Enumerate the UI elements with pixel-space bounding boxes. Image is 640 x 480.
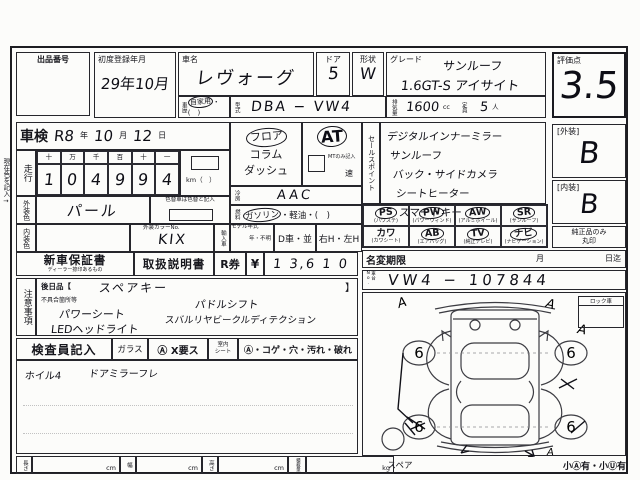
defect-right-1: パドルシフト bbox=[194, 297, 259, 312]
equipment-navi: ナビ(ナビゲーション) bbox=[501, 226, 547, 247]
mileage-d1: 1 bbox=[43, 170, 55, 189]
history-label: 車歴 bbox=[180, 102, 186, 113]
grade-line2: 1.6GT-S アイサイト bbox=[400, 75, 520, 94]
notes-cell: 後日品【 スペアキー 】 不具合箇所等 パワーシート LEDヘッドライト パドル… bbox=[36, 278, 358, 336]
mileage-h5: 十 bbox=[132, 151, 156, 164]
mileage-digits: 十 万 千 百 十 一 1 0 4 9 9 4 bbox=[36, 150, 180, 196]
lock-box: ロック車 bbox=[578, 296, 624, 328]
shape-cell: 形状 W bbox=[352, 52, 384, 96]
car-name-cell: 車名 レヴォーグ bbox=[178, 52, 314, 96]
sales-points-label: セールスポイント bbox=[362, 122, 380, 204]
length-label: 長さ bbox=[16, 456, 32, 474]
model-year-value: 年・不明 bbox=[231, 231, 273, 243]
car-name-value: レヴォーグ bbox=[195, 64, 298, 90]
mileage-h2: 万 bbox=[61, 151, 85, 164]
recycle-amount-cell: 1 3,6 1 0 bbox=[264, 252, 358, 276]
exterior-color-label: 外装色 bbox=[16, 196, 36, 224]
handle-cell: 右H・左H bbox=[316, 224, 362, 252]
height-cell: cm bbox=[218, 456, 288, 474]
first-registration-value: 29年10月 bbox=[100, 73, 170, 94]
sales-line-1: デジタルインナーミラー bbox=[386, 129, 503, 144]
mileage-h3: 千 bbox=[84, 151, 108, 164]
load-label: 積載量 bbox=[288, 456, 306, 474]
speed-suffix: 速 bbox=[345, 169, 353, 178]
wheel-mark-fr: 6 bbox=[566, 344, 576, 362]
mileage-unit-cell: km（ ） bbox=[180, 150, 230, 196]
mt-box bbox=[308, 155, 325, 172]
shift-position-opt3: ダッシュ bbox=[244, 163, 288, 180]
height-label: 高さ bbox=[202, 456, 218, 474]
seat-note: Ⓐ・コゲ・穴・汚れ・破れ bbox=[238, 338, 358, 360]
lock-label: ロック車 bbox=[579, 297, 623, 306]
transmission-cell: AT MTのみ記入 速 bbox=[302, 122, 362, 186]
capacity-label: 定員 bbox=[460, 102, 466, 113]
sales-line-3: バック・サイドカメラ bbox=[392, 167, 498, 182]
sales-line-4: シートヒーター bbox=[395, 186, 470, 201]
inspector-remark-1: ホイル4 bbox=[24, 367, 62, 382]
shaken-month-suffix: 月 bbox=[119, 131, 127, 140]
shaken-day: 12 bbox=[132, 127, 153, 145]
color-no-value: KIX bbox=[157, 232, 188, 248]
seat-label: 室内 シート bbox=[208, 338, 238, 360]
capacity-value: 5 bbox=[479, 100, 489, 115]
score-cell: 評価点 3.5 bbox=[552, 52, 626, 118]
glass-note: Ⓐ X要ス bbox=[148, 338, 208, 360]
name-change-month: 月 bbox=[536, 254, 544, 263]
load-unit: kg bbox=[382, 465, 390, 472]
damage-mark-a: A bbox=[395, 295, 409, 312]
first-registration-cell: 初度登録年月 29年10月 bbox=[94, 52, 176, 118]
shaken-era: R8 bbox=[53, 127, 75, 145]
width-cell: cm bbox=[136, 456, 202, 474]
import-car-label: 輸入車 bbox=[214, 224, 230, 252]
side-note: 現在色を記入→ bbox=[2, 158, 9, 238]
warranty-label: 新車保証書 bbox=[44, 255, 107, 267]
displacement-label: 排気量 bbox=[390, 99, 396, 116]
color-no-label: 外装カラーNo. bbox=[131, 225, 213, 232]
chassis-value: VW4 − 107844 bbox=[387, 271, 551, 289]
color-change-note: 色替車は色替と記入 bbox=[151, 197, 229, 204]
defect-label: 不具合箇所等 bbox=[41, 295, 77, 304]
exterior-color-value: パール bbox=[66, 200, 119, 221]
warranty-cell: 新車保証書 ディーラー捺印あるもの bbox=[16, 252, 134, 276]
genuine-parts-note: 純正品のみ 丸印 bbox=[552, 226, 626, 248]
mileage-h4: 百 bbox=[108, 151, 132, 164]
car-name-label: 車名 bbox=[179, 53, 313, 64]
damage-mark-a: A bbox=[543, 296, 556, 313]
equipment-ab: AB(エアバッグ) bbox=[409, 226, 455, 247]
recycle-ticket-label: R券 bbox=[214, 252, 246, 276]
equipment-tv: TV(純正テレビ) bbox=[455, 226, 501, 247]
name-change-row: 名変期限 月 日迄 bbox=[362, 250, 626, 268]
model-year-cell: モデル年式 年・不明 bbox=[230, 224, 274, 252]
mt-note: MTのみ記入 bbox=[328, 153, 360, 160]
defect-left-1: パワーシート bbox=[58, 306, 125, 322]
equipment-sr: SR(サンルーフ) bbox=[501, 205, 547, 226]
length-unit: cm bbox=[106, 465, 116, 472]
chassis-label: 車台No. bbox=[365, 271, 374, 289]
shape-label: 形状 bbox=[353, 53, 383, 64]
length-cell: cm bbox=[32, 456, 120, 474]
inspector-remark-2: ドアミラーフレ bbox=[88, 365, 159, 380]
warranty-sub: ディーラー捺印あるもの bbox=[48, 268, 103, 273]
shaken-row: 車検 R8 年 10 月 12 日 bbox=[16, 122, 230, 150]
glass-label: ガラス bbox=[112, 338, 148, 360]
wheel-mark-fl: 6 bbox=[414, 344, 424, 362]
door-label: ドア bbox=[317, 53, 349, 64]
lot-number-label: 出品番号 bbox=[17, 53, 89, 64]
mileage-h1: 十 bbox=[37, 151, 61, 164]
capacity-unit: 人 bbox=[492, 104, 499, 111]
color-change-cell: 色替車は色替と記入 bbox=[150, 196, 230, 224]
manual-cell: 取扱説明書 bbox=[134, 252, 214, 276]
name-change-until: 日迄 bbox=[605, 254, 621, 263]
auction-sheet: 現在色を記入→ 出品番号 初度登録年月 29年10月 車名 レヴォーグ ドア 5… bbox=[0, 0, 640, 480]
load-cell: kg bbox=[306, 456, 394, 474]
displacement-value: 1600 bbox=[405, 100, 440, 115]
width-unit: cm bbox=[188, 465, 198, 472]
shaken-month: 10 bbox=[93, 127, 114, 145]
defect-left-2: LEDヘッドライト bbox=[50, 321, 139, 337]
first-registration-label: 初度登録年月 bbox=[95, 53, 175, 64]
color-change-box bbox=[169, 209, 213, 221]
equipment-grid: PS(パワステ) PW(パワーウィンド) AW(アルミホイール) SR(サンルー… bbox=[362, 204, 548, 248]
damage-mark-a: A bbox=[546, 447, 554, 457]
displacement-unit: cc bbox=[443, 104, 450, 111]
later-item-value: スペアキー bbox=[98, 279, 169, 296]
width-label: 幅 bbox=[120, 456, 136, 474]
interior-color-value-cell bbox=[36, 224, 130, 252]
transmission-value: AT bbox=[316, 125, 347, 148]
model-code-value: DBA − VW4 bbox=[250, 99, 353, 115]
shift-position-selected: フロア bbox=[245, 127, 287, 148]
interior-grade-value: B bbox=[578, 189, 600, 220]
score-value: 3.5 bbox=[557, 64, 620, 107]
ac-value: AAC bbox=[276, 188, 314, 203]
ac-row: 冷房 AAC bbox=[230, 186, 362, 205]
exterior-grade-cell: [外装] B bbox=[552, 124, 626, 178]
fuel-label: 燃料 bbox=[233, 209, 239, 220]
door-cell: ドア 5 bbox=[316, 52, 350, 96]
shape-value: W bbox=[359, 64, 377, 83]
recycle-amount: 1 3,6 1 0 bbox=[272, 257, 349, 272]
sales-line-2: サンルーフ bbox=[389, 148, 442, 163]
name-change-label: 名変期限 bbox=[366, 252, 406, 267]
mileage-d5: 9 bbox=[137, 170, 149, 189]
diagram-bottom-note: 小Ⓐ有・小Ⓤ有 bbox=[524, 459, 626, 472]
lot-number-cell: 出品番号 bbox=[16, 52, 90, 116]
yen-sign: ¥ bbox=[246, 252, 264, 276]
fuel-selected: ガソリン bbox=[242, 206, 281, 223]
history-selected: 自家用 bbox=[187, 95, 213, 109]
model-code-cell: 型式 DBA − VW4 bbox=[230, 96, 386, 118]
mileage-unit: km（ ） bbox=[186, 177, 216, 184]
engine-cell: 排気量 1600 cc 定員 5 人 bbox=[386, 96, 546, 118]
ruled-line bbox=[23, 433, 353, 434]
later-item-label: 後日品【 bbox=[41, 281, 71, 292]
shaken-year-suffix: 年 bbox=[80, 131, 88, 140]
notes-label: 注意事項 bbox=[16, 278, 36, 336]
mileage-d3: 4 bbox=[90, 170, 102, 189]
history-cell: 車歴 自家用・( ) bbox=[178, 96, 230, 118]
shaken-day-suffix: 日 bbox=[158, 131, 166, 140]
shaken-label: 車検 bbox=[20, 126, 48, 146]
ruled-line bbox=[23, 405, 353, 406]
mileage-d2: 0 bbox=[66, 170, 78, 189]
defect-right-2: スバルリヤビークルディテクション bbox=[164, 312, 317, 326]
mileage-d6: 4 bbox=[161, 170, 173, 189]
grade-cell: グレード サンルーフ 1.6GT-S アイサイト bbox=[386, 52, 546, 96]
wheel-mark-rl: 6 bbox=[414, 418, 424, 436]
mileage-label: 走行 bbox=[16, 150, 36, 196]
mileage-d4: 9 bbox=[114, 170, 126, 189]
ac-label: 冷房 bbox=[233, 190, 239, 201]
wheel-mark-rr: 6 bbox=[566, 418, 576, 436]
height-unit: cm bbox=[274, 465, 284, 472]
interior-grade-cell: [内装] B bbox=[552, 180, 626, 224]
equipment-ps: PS(パワステ) bbox=[363, 205, 409, 226]
equipment-pw: PW(パワーウィンド) bbox=[409, 205, 455, 226]
equipment-aw: AW(アルミホイール) bbox=[455, 205, 501, 226]
grade-line1: サンルーフ bbox=[442, 57, 503, 74]
fuel-row: 燃料 ガソリン・軽油・( ) bbox=[230, 205, 362, 224]
chassis-row: 車台No. VW4 − 107844 bbox=[362, 270, 626, 290]
exterior-grade-label: [外装] bbox=[553, 125, 625, 136]
dealer-car-cell: D車・並 bbox=[274, 224, 316, 252]
interior-color-label: 内装色 bbox=[16, 224, 36, 252]
inspector-label: 検査員記入 bbox=[16, 338, 112, 360]
later-item-close: 】 bbox=[345, 279, 355, 294]
equipment-leather: カワ(カワシート) bbox=[363, 226, 409, 247]
door-value: 5 bbox=[327, 64, 340, 84]
shift-position-cell: フロア コラム ダッシュ bbox=[230, 122, 302, 186]
grade-label: グレード bbox=[390, 55, 422, 64]
model-code-label: 型式 bbox=[233, 102, 239, 113]
exterior-grade-value: B bbox=[577, 136, 601, 171]
exterior-color-value-cell: パール bbox=[36, 196, 150, 224]
shift-position-opt2: コラム bbox=[250, 147, 283, 164]
fuel-rest: ・軽油・( ) bbox=[281, 211, 330, 221]
mileage-h6: 一 bbox=[155, 151, 179, 164]
inspector-remarks-box: ホイル4 ドアミラーフレ bbox=[16, 360, 358, 454]
meter-mark-box bbox=[191, 156, 219, 170]
sales-points-cell: デジタルインナーミラー サンルーフ バック・サイドカメラ シートヒーター スマー… bbox=[380, 122, 546, 204]
color-no-cell: 外装カラーNo. KIX bbox=[130, 224, 214, 252]
